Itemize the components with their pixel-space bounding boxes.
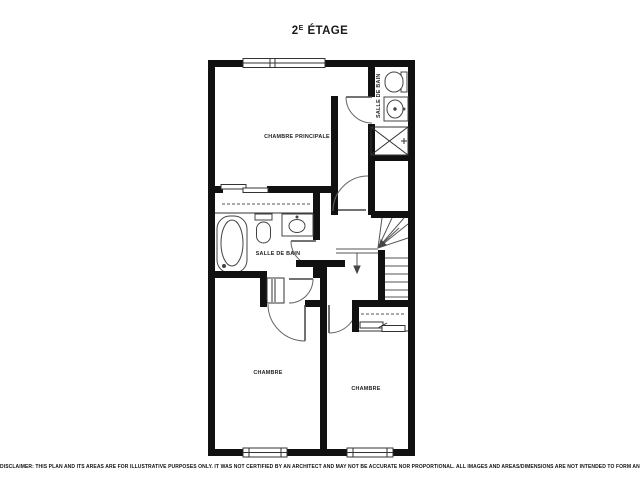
bathroom-top-door (346, 97, 372, 123)
hall-wall (296, 260, 345, 267)
sink-top (384, 97, 408, 121)
disclaimer-text: DISCLAIMER: THIS PLAN AND ITS AREAS ARE … (0, 464, 640, 470)
bedroom-right-closet (352, 303, 408, 332)
bathroom-top-label: SALLE DE BAIN (376, 73, 382, 118)
floorplan: SALLE DE BAIN CHAMBRE PRINCIPALE (0, 0, 640, 480)
linen-closet (371, 127, 408, 155)
bedroom-left-door (268, 304, 305, 341)
bedroom-left-label: CHAMBRE (253, 370, 282, 376)
closet-symbol (401, 138, 407, 144)
toilet-middle (255, 214, 272, 243)
window-bottom-left (243, 448, 287, 457)
sink-middle (282, 214, 313, 236)
bedroom-walls (260, 267, 327, 456)
toilet-top (385, 72, 407, 92)
bedroom-right-label: CHAMBRE (351, 386, 380, 392)
window-bottom-right (347, 448, 393, 457)
bathroom-middle-label: SALLE DE BAIN (256, 251, 301, 257)
vestibule-door (289, 279, 313, 303)
window-top (243, 59, 325, 68)
bathtub (217, 216, 247, 273)
stairs (336, 157, 415, 307)
vestibule-closet (267, 278, 284, 303)
master-bedroom-label: CHAMBRE PRINCIPALE (264, 134, 330, 140)
landing-door (333, 176, 368, 211)
master-closet-sliding-doors (221, 185, 268, 193)
